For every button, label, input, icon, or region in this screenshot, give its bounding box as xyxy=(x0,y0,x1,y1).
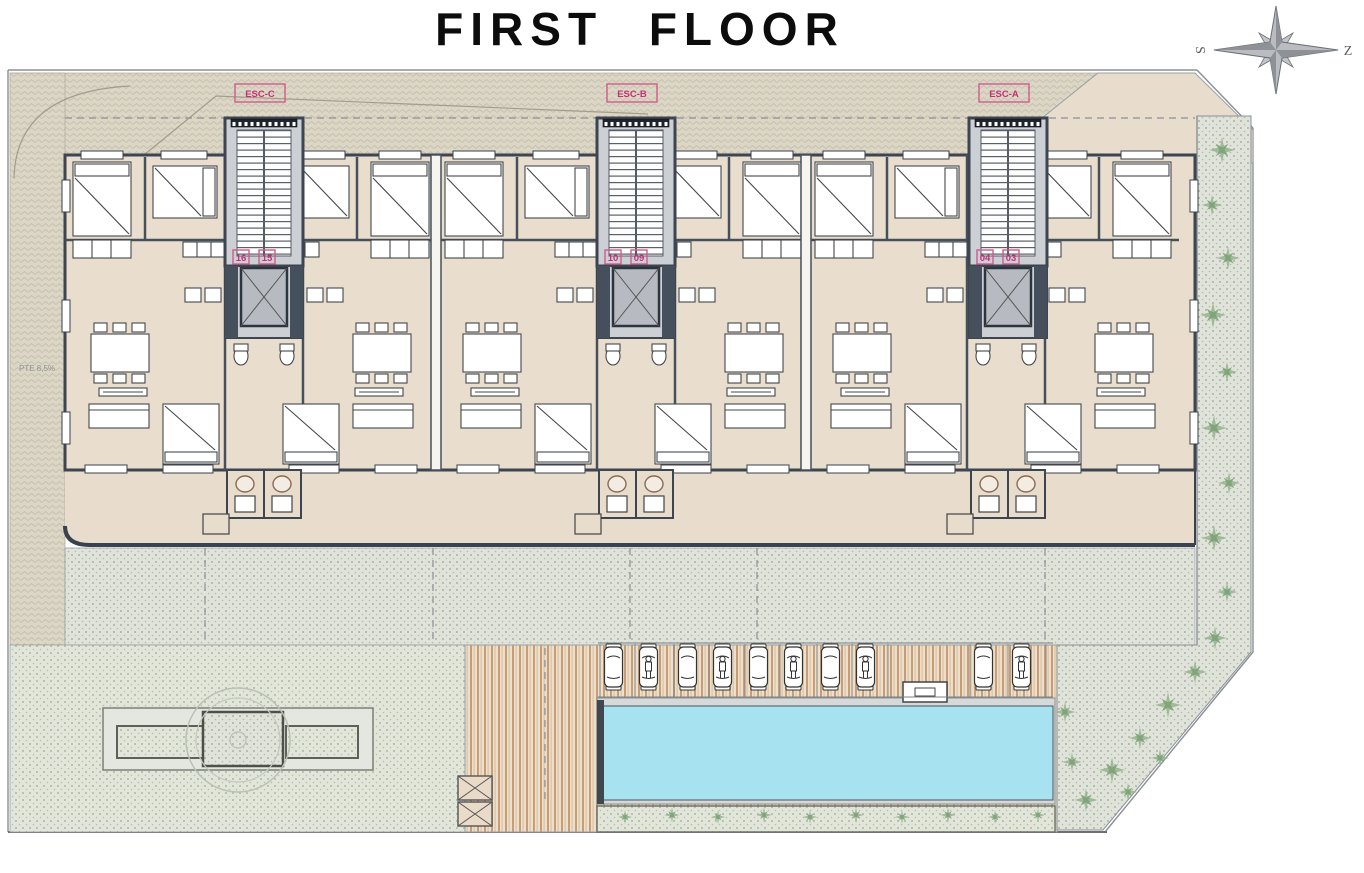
car-icon xyxy=(785,644,803,690)
unit-number: 09 xyxy=(634,253,645,264)
car-icon xyxy=(640,644,658,690)
pool xyxy=(597,682,1055,832)
unit-number: 04 xyxy=(980,253,991,264)
pool-bench xyxy=(903,682,947,702)
unit-number: 10 xyxy=(608,253,619,264)
pool-water xyxy=(601,706,1053,800)
car-icon xyxy=(1013,644,1031,690)
site-plan-drawing: ESC-C 16 15 xyxy=(0,0,1364,873)
ramp-slope-label: PTE 8,5% xyxy=(19,364,55,373)
car-icon xyxy=(822,644,840,690)
compass-east-label: Z xyxy=(1344,44,1353,59)
compass-west-label: S xyxy=(1192,46,1207,54)
car-icon xyxy=(679,644,697,690)
unit-number: 15 xyxy=(262,253,273,264)
stair-label: ESC-A xyxy=(989,89,1019,100)
car-icon xyxy=(975,644,993,690)
lightwell-gap xyxy=(431,155,441,470)
car-icon xyxy=(714,644,732,690)
stair-label: ESC-B xyxy=(617,89,647,100)
stair-label: ESC-C xyxy=(245,89,275,100)
car-icon xyxy=(605,644,623,690)
building: ESC-C 16 15 xyxy=(62,84,1198,545)
unit-number: 03 xyxy=(1006,253,1017,264)
lightwell-gap xyxy=(801,155,811,470)
compass-icon: S Z xyxy=(1192,6,1352,94)
car-icon xyxy=(857,644,875,690)
car-icon xyxy=(750,644,768,690)
pool-planter xyxy=(597,806,1055,832)
floor-plan-sheet: FIRST FLOOR xyxy=(0,0,1364,873)
unit-number: 16 xyxy=(236,253,247,264)
